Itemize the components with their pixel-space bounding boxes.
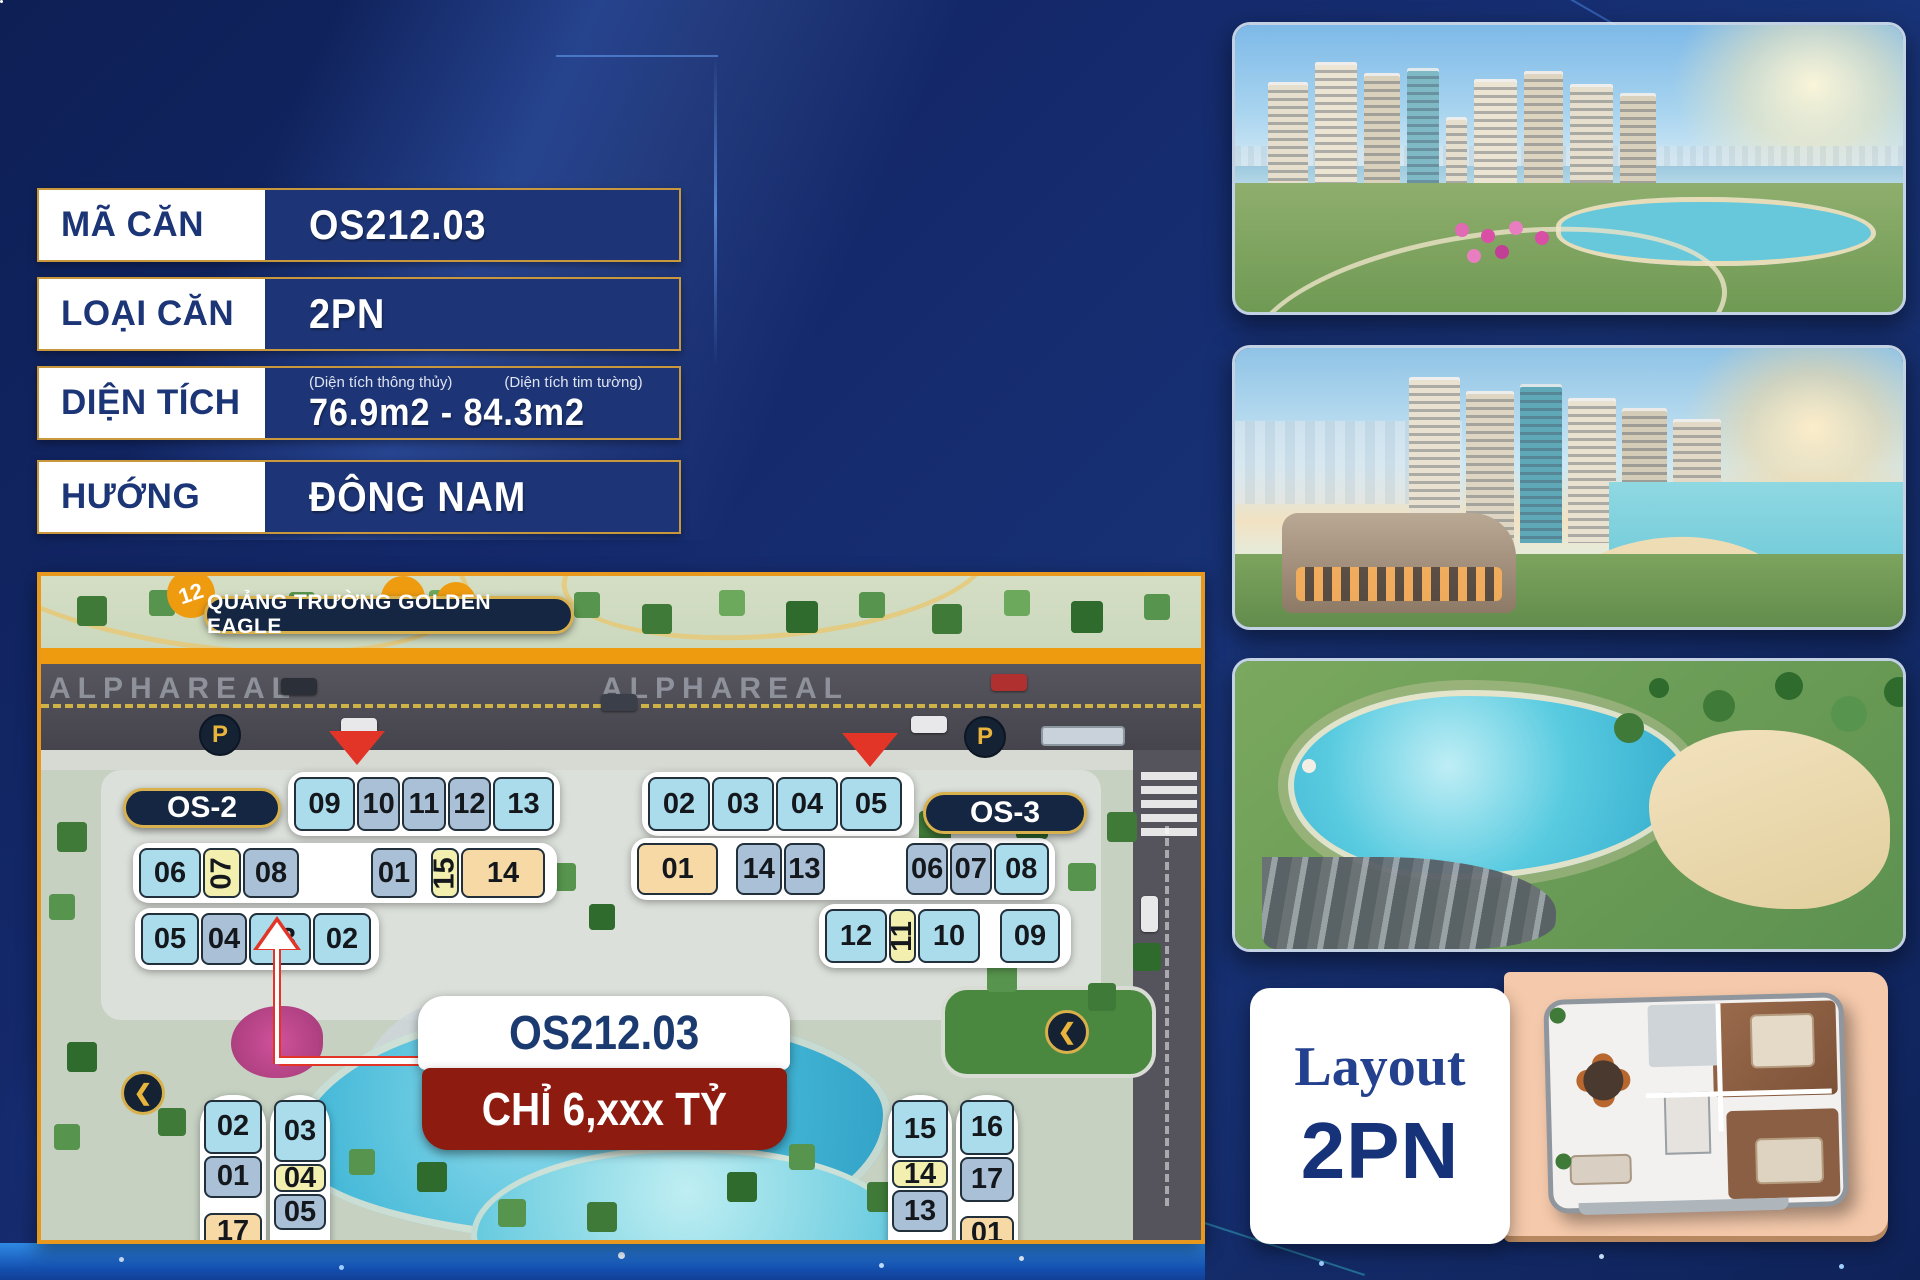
site-plan-map: ALPHAREAL ALPHAREAL 12 QUẢNG TRƯỜNG GOLD…	[37, 572, 1205, 1244]
car	[991, 674, 1027, 691]
unit-cell[interactable]: 12	[825, 909, 887, 963]
unit-cell[interactable]: 04	[776, 777, 838, 831]
render-photo-resort-pool	[1232, 658, 1906, 952]
tower-cluster	[1268, 62, 1655, 200]
os2-row2: 06 07 08 01 15 14	[133, 843, 557, 903]
unit-cell[interactable]: 04	[201, 913, 247, 965]
parking-icon: P	[964, 716, 1006, 758]
area-caption-gross: (Diện tích tim tường)	[504, 374, 642, 391]
unit-cell[interactable]: 14	[736, 843, 782, 895]
entrance-marker-icon	[329, 731, 385, 765]
circuit-line	[556, 55, 718, 57]
unit-cell[interactable]: 12	[448, 777, 491, 831]
unit-number: 15	[429, 857, 462, 889]
sofa	[1569, 1154, 1632, 1186]
info-value: 76.9m2 - 84.3m2	[309, 392, 585, 435]
car	[1141, 896, 1158, 932]
info-row-unit-type: LOẠI CĂN 2PN	[37, 277, 681, 351]
bus-stop	[1041, 726, 1125, 746]
unit-cell[interactable]: 14	[892, 1160, 948, 1188]
os3-row1: 02 03 04 05	[642, 772, 914, 836]
unit-cell[interactable]: 07	[950, 843, 992, 895]
stack-sw-a: 02 01 17	[200, 1095, 266, 1244]
unit-cell[interactable]: 13	[493, 777, 554, 831]
watermark: ALPHAREAL	[49, 672, 297, 706]
unit-cell[interactable]: 07	[203, 848, 241, 898]
circuit-line	[714, 56, 717, 366]
poster-root: MÃ CĂN OS212.03 LOẠI CĂN 2PN DIỆN TÍCH (…	[0, 0, 1920, 1280]
plaza-label: QUẢNG TRƯỜNG GOLDEN EAGLE	[204, 596, 574, 634]
unit-cell[interactable]: 03	[274, 1100, 326, 1162]
info-row-area: DIỆN TÍCH (Diện tích thông thủy) (Diện t…	[37, 366, 681, 440]
info-label: MÃ CĂN	[39, 190, 265, 260]
tower	[1364, 73, 1400, 200]
floor-plan	[1543, 992, 1848, 1214]
bathroom	[1647, 1003, 1721, 1067]
mall-podium	[1282, 513, 1516, 613]
unit-cell[interactable]: 11	[402, 777, 445, 831]
callout-price-text: CHỈ 6,xxx TỶ	[482, 1082, 727, 1136]
unit-cell[interactable]: 17	[204, 1213, 262, 1244]
os2-row1: 09 10 11 12 13	[288, 772, 560, 836]
sparkle-dots	[0, 0, 3, 3]
unit-cell[interactable]: 14	[461, 848, 545, 898]
info-row-unit-code: MÃ CĂN OS212.03	[37, 188, 681, 262]
render-photo-aerial-park	[1232, 22, 1906, 315]
unit-cell[interactable]: 06	[906, 843, 948, 895]
tower	[1407, 68, 1439, 200]
layout-card: Layout 2PN	[1250, 972, 1888, 1244]
unit-number: 07	[205, 857, 238, 889]
chevron-left-icon[interactable]: ❮	[1045, 1010, 1089, 1054]
unit-cell[interactable]: 09	[294, 777, 355, 831]
unit-cell[interactable]: 03	[712, 777, 774, 831]
layout-title: Layout	[1294, 1035, 1465, 1099]
unit-cell[interactable]: 15	[431, 848, 459, 898]
parking-icon: P	[199, 714, 241, 756]
watermark: ALPHAREAL	[601, 672, 849, 706]
mall-windows	[1296, 567, 1502, 601]
unit-cell[interactable]: 16	[960, 1100, 1014, 1155]
unit-cell[interactable]: 17	[960, 1157, 1014, 1202]
unit-cell[interactable]: 01	[637, 843, 718, 895]
unit-cell[interactable]: 06	[139, 848, 201, 898]
crosswalk	[1141, 772, 1197, 836]
car	[911, 716, 947, 733]
bed	[1755, 1137, 1824, 1185]
unit-cell[interactable]: 10	[918, 909, 980, 963]
os3-row2: 01 14 13 06 07 08	[631, 838, 1055, 900]
light-beam	[0, 0, 1350, 540]
kitchen	[1664, 1092, 1712, 1155]
info-value: OS212.03	[309, 201, 486, 249]
unit-cell[interactable]: 01	[960, 1216, 1014, 1244]
unit-cell[interactable]: 08	[994, 843, 1049, 895]
tower	[1524, 71, 1563, 200]
unit-cell[interactable]: 04	[274, 1164, 326, 1192]
info-label: HƯỚNG	[39, 462, 265, 532]
info-label: DIỆN TÍCH	[39, 368, 265, 438]
bed	[1750, 1013, 1815, 1069]
unit-cell[interactable]: 11	[889, 909, 916, 963]
road-center-line	[1165, 826, 1169, 1206]
info-label: LOẠI CĂN	[39, 279, 265, 349]
unit-cell[interactable]: 05	[840, 777, 902, 831]
stack-sw-b: 03 04 05	[270, 1095, 330, 1244]
car	[281, 678, 317, 695]
chevron-left-icon[interactable]: ❮	[121, 1071, 165, 1115]
callout-unit-code: OS212.03	[418, 996, 790, 1070]
block-label-os2: OS-2	[123, 788, 281, 828]
car	[601, 694, 637, 711]
render-photo-beach-towers	[1232, 345, 1906, 630]
trees	[41, 576, 43, 578]
info-row-direction: HƯỚNG ĐÔNG NAM	[37, 460, 681, 534]
pointer-line	[279, 1056, 419, 1066]
unit-cell[interactable]: 02	[313, 913, 371, 965]
stack-se-a: 15 14 13	[888, 1095, 952, 1244]
umbrellas	[1302, 759, 1316, 773]
layout-type: 2PN	[1301, 1105, 1460, 1197]
area-caption-net: (Diện tích thông thủy)	[309, 374, 452, 391]
info-value: ĐÔNG NAM	[309, 473, 526, 521]
layout-title-panel: Layout 2PN	[1250, 988, 1510, 1244]
unit-cell[interactable]: 13	[892, 1190, 948, 1232]
unit-cell[interactable]: 13	[784, 843, 826, 895]
unit-cell[interactable]: 08	[243, 848, 299, 898]
corridor	[826, 843, 905, 895]
unit-pointer-arrow	[258, 922, 296, 949]
corridor	[204, 1199, 262, 1212]
unit-cell[interactable]: 10	[357, 777, 400, 831]
unit-cell[interactable]: 09	[1000, 909, 1060, 963]
corridor	[981, 909, 999, 963]
tower	[1315, 62, 1358, 200]
unit-cell[interactable]: 01	[204, 1156, 262, 1199]
pointer-line	[273, 948, 281, 1064]
map-road-edge	[41, 648, 1201, 664]
block-label-os3: OS-3	[923, 792, 1087, 834]
tower	[1520, 384, 1562, 543]
corridor	[719, 843, 735, 895]
unit-cell[interactable]: 15	[892, 1100, 948, 1158]
callout-price: CHỈ 6,xxx TỶ	[422, 1068, 787, 1150]
unit-cell[interactable]: 01	[371, 848, 417, 898]
bottom-glow-band	[0, 1243, 1205, 1280]
unit-cell[interactable]: 05	[141, 913, 199, 965]
corridor	[300, 848, 370, 898]
stack-se-b: 16 17 01	[956, 1095, 1018, 1244]
callout-unit-text: OS212.03	[509, 1006, 699, 1061]
unit-cell[interactable]: 02	[204, 1100, 262, 1154]
unit-cell[interactable]: 02	[648, 777, 710, 831]
os3-row3: 12 11 10 09	[819, 904, 1071, 968]
info-value: 2PN	[309, 290, 385, 338]
unit-number: 11	[886, 921, 919, 952]
unit-cell[interactable]: 05	[274, 1194, 326, 1230]
entrance-marker-icon	[842, 733, 898, 767]
corridor	[960, 1203, 1014, 1215]
